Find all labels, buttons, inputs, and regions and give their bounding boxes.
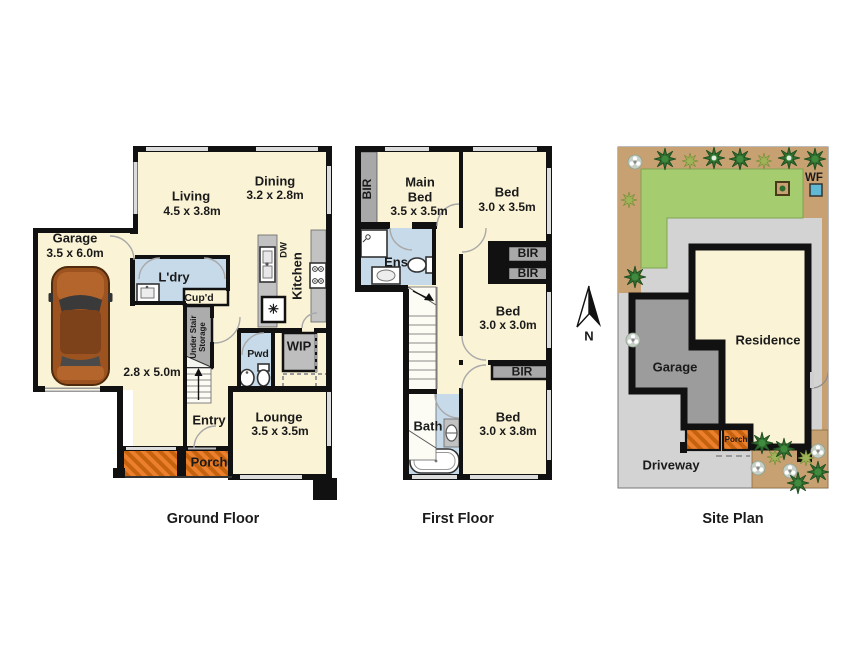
car-icon (49, 267, 113, 385)
flower-icon (811, 444, 825, 458)
toilet-icon (258, 364, 270, 386)
label-main-bed-1: Main (405, 174, 435, 189)
label-garage-dims: 3.5 x 6.0m (46, 246, 103, 260)
cooktop-icon (310, 263, 326, 288)
label-porch: Porch (191, 454, 228, 469)
tree-icon (624, 266, 646, 288)
bush-icon (756, 153, 772, 169)
flower-icon (751, 461, 765, 475)
label-kitchen: Kitchen (289, 252, 304, 300)
label-under-stair-2: Storage (198, 322, 207, 352)
label-water-feature: WF (805, 172, 823, 184)
floorplan-image: Garage 3.5 x 6.0m Living 4.5 x 3.8m Dini… (0, 0, 861, 645)
label-main-bed-2: Bed (408, 189, 433, 204)
water-feature-icon (810, 184, 822, 196)
label-under-stair-1: Under Stair (189, 315, 198, 358)
label-bed1-name: Bed (495, 184, 520, 199)
bush-icon (682, 153, 698, 169)
label-powder: Pwd (247, 348, 269, 360)
flower-icon (626, 333, 640, 347)
porch-left-slab (123, 450, 178, 477)
flower-icon (628, 155, 642, 169)
label-family-dims: 2.8 x 5.0m (123, 365, 180, 379)
tree-icon (773, 438, 795, 460)
toilet-icon (408, 257, 433, 273)
bush-icon (621, 192, 637, 208)
north-arrow: N (577, 286, 601, 343)
first-floor-plan: BIR Main Bed 3.5 x 3.5m Bed 3.0 x 3.5m B… (355, 146, 552, 527)
label-laundry: L'dry (158, 269, 190, 284)
appliance-symbol: ✳ (268, 301, 279, 316)
stairs-first-floor (408, 287, 436, 460)
label-ensuite: Ens (384, 254, 408, 269)
label-bed3-name: Bed (496, 409, 521, 424)
label-bir3: BIR (512, 365, 533, 379)
label-cupboard: Cup'd (184, 292, 213, 304)
floorplan-page: Garage 3.5 x 6.0m Living 4.5 x 3.8m Dini… (0, 0, 861, 645)
site-plan-title: Site Plan (702, 511, 763, 527)
basin-icon (372, 267, 400, 284)
label-bed2-dims: 3.0 x 3.0m (479, 318, 536, 332)
ground-floor-plan: Garage 3.5 x 6.0m Living 4.5 x 3.8m Dini… (33, 146, 337, 527)
label-wip: WIP (287, 338, 312, 353)
label-bir1: BIR (518, 246, 539, 260)
tree-icon (729, 148, 751, 170)
label-dining-dims: 3.2 x 2.8m (246, 188, 303, 202)
label-entry: Entry (192, 412, 226, 427)
label-dining-name: Dining (255, 173, 295, 188)
label-bir-main: BIR (360, 178, 374, 199)
tree-icon (654, 148, 676, 170)
tree-icon (787, 472, 809, 494)
label-site-garage: Garage (653, 359, 698, 374)
label-lounge-name: Lounge (256, 409, 303, 424)
label-bed2-name: Bed (496, 303, 521, 318)
label-bir2: BIR (518, 266, 539, 280)
label-garage-name: Garage (53, 230, 98, 245)
label-living-name: Living (172, 188, 210, 203)
tree-icon (807, 461, 829, 483)
north-label: N (584, 328, 593, 343)
ground-floor-title: Ground Floor (167, 511, 260, 527)
flower-icon (783, 464, 797, 478)
label-site-porch: Porch (725, 435, 748, 444)
basin-icon-bath (444, 419, 459, 447)
first-floor-title: First Floor (422, 511, 494, 527)
label-living-dims: 4.5 x 3.8m (163, 204, 220, 218)
site-plan: WF Residence Garage Porch Driveway Site … (618, 147, 829, 527)
tree-icon (751, 432, 773, 454)
label-main-bed-dims: 3.5 x 3.5m (390, 204, 447, 218)
shower-icon (361, 230, 387, 257)
dishwasher-label: DW (279, 242, 290, 258)
label-bed1-dims: 3.0 x 3.5m (478, 200, 535, 214)
label-residence: Residence (735, 332, 800, 347)
tree-icon (804, 148, 826, 170)
label-bed3-dims: 3.0 x 3.8m (479, 424, 536, 438)
site-porch-left (686, 429, 720, 450)
garden-strip-right (822, 218, 828, 430)
label-lounge-dims: 3.5 x 3.5m (251, 424, 308, 438)
basin-icon (240, 370, 254, 387)
label-driveway: Driveway (642, 457, 700, 472)
label-bath: Bath (414, 418, 443, 433)
